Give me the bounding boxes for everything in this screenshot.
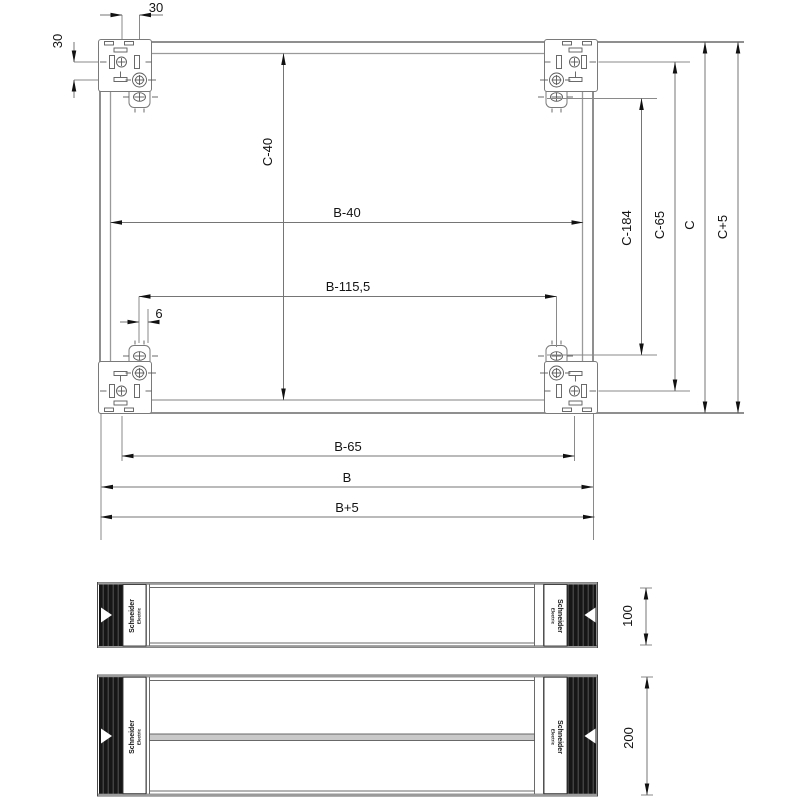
plinth-frame xyxy=(100,42,744,540)
corner-bracket-bottom-right xyxy=(538,341,598,414)
brand-strip-left: Schneider Electric xyxy=(123,585,146,647)
dimension-label-inner-width: B-40 xyxy=(333,205,360,220)
brand-strip-right: Schneider Electric xyxy=(544,585,567,647)
front-view-200: Schneider Electric Schneider Electric xyxy=(98,675,654,796)
brand-strip-left: Schneider Electric xyxy=(123,677,146,794)
dimension-inner-height: C-40 xyxy=(260,54,284,401)
dimension-height-200: 200 xyxy=(621,677,653,795)
brand-sub: Electric xyxy=(137,728,142,745)
dimension-c-minus-65: C-65 xyxy=(599,62,691,391)
dimension-label-c-minus-184: C-184 xyxy=(619,210,634,245)
dimension-label-b-total: B xyxy=(343,470,352,485)
dimension-label-b-plus-5: B+5 xyxy=(335,500,359,515)
dimension-label-slot-offset: 6 xyxy=(155,306,162,321)
front-view-100: Schneider Electric Schneider Electric 1 xyxy=(98,583,653,648)
dimension-b-plus-5: B+5 xyxy=(101,500,595,517)
dimension-c-total: C xyxy=(682,42,705,413)
brand-sub: Electric xyxy=(551,729,556,746)
brand-name: Schneider xyxy=(556,720,563,754)
dimension-c-plus-5: C+5 xyxy=(715,42,738,413)
technical-drawing: 30 30 C-40 B-40 B-115,5 xyxy=(0,0,800,800)
brand-sub: Electric xyxy=(137,607,142,624)
dimension-b-minus-65: B-65 xyxy=(122,416,575,461)
dimension-label-bolt-span-width: B-115,5 xyxy=(326,279,371,294)
corner-bracket-bottom-left xyxy=(99,341,159,414)
dimension-left-spacing: 30 xyxy=(50,34,98,98)
brand-name: Schneider xyxy=(129,720,136,754)
dimension-label-b-minus-65: B-65 xyxy=(334,439,361,454)
dimension-label-c-plus-5: C+5 xyxy=(715,215,730,239)
dimension-height-100: 100 xyxy=(620,588,652,645)
dimension-label-c-total: C xyxy=(682,220,697,229)
front-panel-100 xyxy=(147,584,544,646)
corner-bracket-top-left xyxy=(99,40,159,113)
dimension-inner-width: B-40 xyxy=(111,205,584,223)
dimension-label-height-200: 200 xyxy=(621,727,636,749)
dimension-top-spacing: 30 xyxy=(100,0,163,39)
brand-name: Schneider xyxy=(556,599,563,633)
dimension-slot-offset: 6 xyxy=(120,306,163,343)
dimension-label-left-spacing: 30 xyxy=(50,34,65,48)
dimension-label-height-100: 100 xyxy=(620,605,635,627)
brand-strip-right: Schneider Electric xyxy=(544,677,567,794)
dimension-label-top-spacing: 30 xyxy=(149,0,163,15)
dimension-b-total: B xyxy=(102,470,594,487)
brand-sub: Electric xyxy=(551,608,556,625)
top-view: 30 30 C-40 B-40 B-115,5 xyxy=(50,0,744,540)
corner-bracket-top-right xyxy=(538,40,598,113)
dimension-c-minus-184: C-184 xyxy=(547,99,657,356)
front-panel-200 xyxy=(147,677,544,794)
dimension-label-inner-height: C-40 xyxy=(260,138,275,166)
dimension-bolt-span-width: B-115,5 xyxy=(139,279,557,347)
dimension-label-c-minus-65: C-65 xyxy=(652,211,667,239)
brand-name: Schneider xyxy=(129,599,136,633)
panel-joint-bar xyxy=(150,734,535,741)
